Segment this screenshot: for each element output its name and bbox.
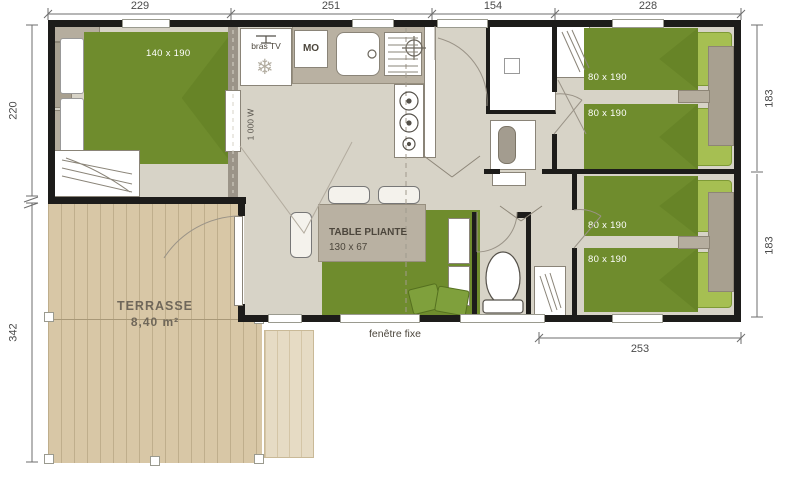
- entry-step-deck: [264, 330, 314, 458]
- dim-label-right-1: 183: [764, 79, 777, 119]
- bed-size-label: 80 x 190: [588, 220, 627, 231]
- blanket-fold: [659, 104, 698, 170]
- snowflake-icon: ❄: [256, 57, 274, 78]
- tv-bracket-label: bras TV: [241, 41, 291, 51]
- dim-label-top-3: 154: [433, 0, 553, 13]
- cushion: [434, 285, 470, 316]
- bed-size-label: 80 x 190: [588, 108, 627, 119]
- deck-post: [254, 454, 264, 464]
- washbasin: [498, 126, 516, 164]
- window: [437, 19, 488, 28]
- mobile-home-floorplan: 140 x 190 bras TV ❄ MO TABLE PLIANTE 130…: [0, 0, 796, 480]
- bedside-shelf: [678, 90, 710, 103]
- window: [612, 314, 663, 323]
- chair: [328, 186, 370, 204]
- dim-label-top-1: 229: [80, 0, 200, 13]
- shower-drain: [504, 58, 520, 74]
- dim-label-top-2: 251: [271, 0, 391, 13]
- side-door: [268, 314, 302, 323]
- deck-post: [150, 456, 160, 466]
- fixed-window: [340, 314, 420, 323]
- folding-table: TABLE PLIANTE 130 x 67: [318, 204, 426, 262]
- outer-wall-left: [48, 20, 55, 204]
- bedroom2-west-wall: [552, 134, 557, 169]
- table-size-label: 130 x 67: [329, 242, 367, 253]
- deck-post: [44, 312, 54, 322]
- bedroom-south-wall: [48, 197, 246, 204]
- terrace-name-label: TERRASSE: [65, 299, 245, 313]
- dim-label-left-1: 220: [8, 91, 21, 131]
- dim-label-top-4: 228: [588, 0, 708, 13]
- chair: [290, 212, 312, 258]
- headboard-shelf: [708, 192, 734, 292]
- stove: [394, 84, 424, 158]
- bedroom3-west-wall: [572, 174, 577, 210]
- terrace-deck-lower: [48, 319, 262, 463]
- deck-post: [44, 454, 54, 464]
- headboard-shelf: [708, 46, 734, 146]
- pillow: [60, 98, 84, 154]
- microwave-label: MO: [295, 43, 327, 54]
- dim-label-bottom: 253: [580, 343, 700, 356]
- storage-box: [448, 218, 470, 264]
- bedroom3-west-wall: [572, 248, 577, 315]
- dim-label-right-2: 183: [764, 226, 777, 266]
- dim-label-left-2: 342: [8, 313, 21, 353]
- bathroom-shelf: [492, 172, 526, 186]
- pillow: [60, 38, 84, 94]
- window: [460, 314, 545, 323]
- bedside-shelf: [678, 236, 710, 249]
- bed-size-label: 80 x 190: [588, 254, 627, 265]
- wardrobe-hanging: [54, 150, 140, 197]
- living-west-wall: [238, 197, 245, 216]
- bed-size-label: 80 x 190: [588, 72, 627, 83]
- bedroom2-west-wall: [552, 26, 557, 92]
- blanket-fold: [659, 28, 698, 90]
- window: [612, 19, 664, 28]
- window: [122, 19, 170, 28]
- bedrooms-divider-wall: [484, 169, 500, 174]
- hall-wall-stub: [517, 212, 530, 218]
- shower-cabin: [486, 26, 556, 114]
- fixed-window-label: fenêtre fixe: [335, 328, 455, 340]
- microwave: MO: [294, 30, 328, 68]
- wardrobe-hanging: [534, 266, 566, 316]
- table-name-label: TABLE PLIANTE: [329, 227, 407, 238]
- blanket-fold: [659, 176, 698, 236]
- tv-bracket-ac-unit: bras TV ❄: [240, 28, 292, 86]
- master-bed-size-label: 140 x 190: [146, 48, 190, 59]
- radiator-label: 1 000 W: [245, 90, 258, 160]
- sink-drainer: [384, 32, 422, 76]
- radiator: [225, 90, 241, 152]
- chair: [378, 186, 420, 204]
- wc-west-wall: [472, 212, 477, 315]
- window: [352, 19, 394, 28]
- sink-basin: [336, 32, 380, 76]
- terrace-area-label: 8,40 m²: [65, 315, 245, 329]
- kitchen-tall-unit: [424, 26, 436, 158]
- wc-east-wall: [526, 212, 531, 315]
- master-bed: 140 x 190: [84, 32, 232, 164]
- entrance-door-leaf: [234, 216, 243, 306]
- blanket-fold: [659, 248, 698, 312]
